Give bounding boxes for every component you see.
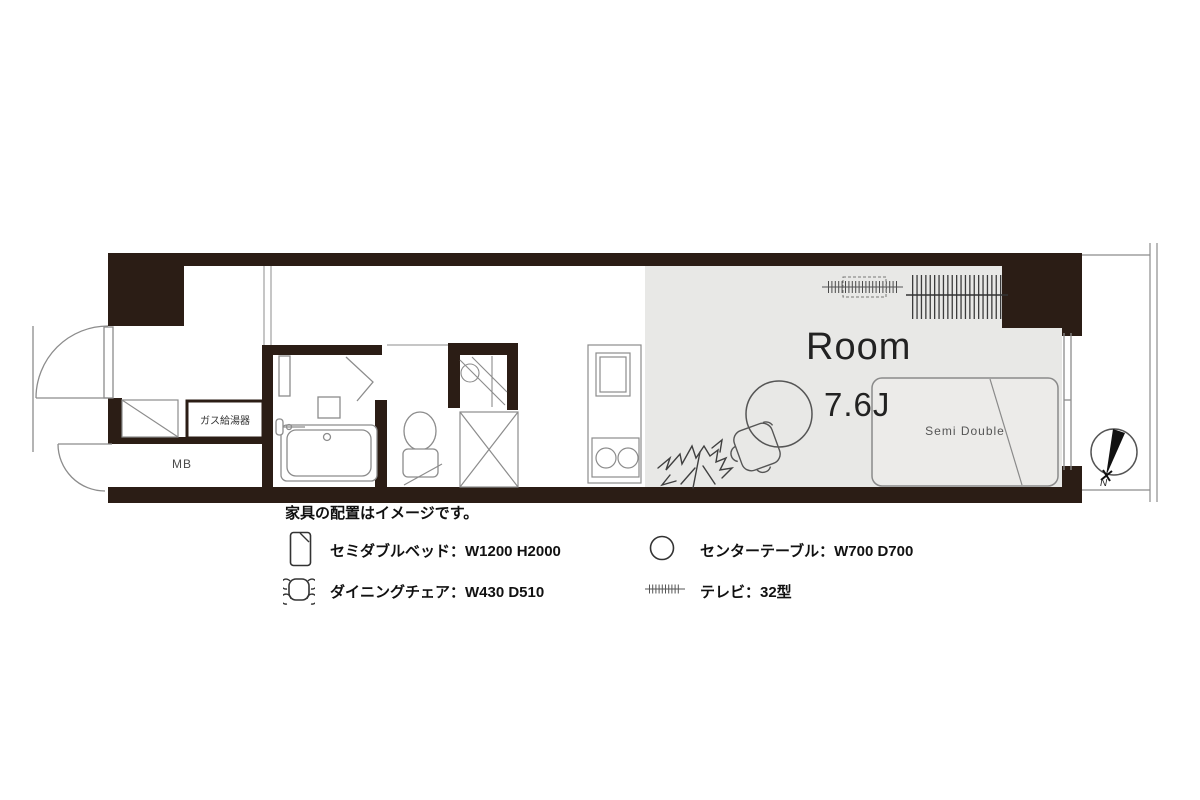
gas-heater-label: ガス給湯器 bbox=[187, 401, 263, 438]
bed-icon bbox=[289, 531, 313, 568]
bathroom bbox=[273, 355, 377, 487]
toilet bbox=[403, 412, 438, 477]
bath-shelf bbox=[279, 356, 290, 396]
compass-icon bbox=[1091, 429, 1137, 481]
legend-note: 家具の配置はイメージです。 bbox=[285, 502, 478, 523]
kitchen-unit bbox=[588, 345, 641, 483]
floor-plan-page: Room 7.6J Semi Double ガス給湯器 MB N 家具の配置はイ… bbox=[0, 0, 1200, 800]
chair-icon bbox=[283, 572, 315, 606]
room-name-label: Room bbox=[806, 326, 911, 369]
window bbox=[1064, 333, 1071, 470]
bed-size-label: Semi Double bbox=[872, 424, 1058, 438]
shoe-cabinet bbox=[122, 400, 178, 437]
entrance-door bbox=[33, 326, 113, 452]
toilet-room bbox=[387, 345, 448, 485]
floor-plan-drawing bbox=[0, 0, 1200, 800]
hallway-divider bbox=[264, 266, 271, 345]
washing-machine-space bbox=[460, 412, 518, 487]
meter-box-label: MB bbox=[172, 457, 192, 471]
compass-n-label: N bbox=[1100, 478, 1107, 489]
vanity-unit bbox=[460, 355, 507, 408]
bathtub bbox=[281, 425, 377, 481]
legend-item-chair: ダイニングチェア：W430 D510 bbox=[330, 581, 544, 602]
legend-item-table: センターテーブル：W700 D700 bbox=[700, 540, 913, 561]
legend-item-tv: テレビ：32型 bbox=[700, 581, 792, 602]
tv-icon bbox=[645, 581, 687, 597]
mb-door bbox=[58, 444, 112, 491]
table-icon bbox=[648, 534, 676, 562]
room-size-label: 7.6J bbox=[824, 386, 890, 424]
bath-counter bbox=[318, 397, 340, 418]
legend-item-bed: セミダブルベッド：W1200 H2000 bbox=[330, 540, 561, 561]
